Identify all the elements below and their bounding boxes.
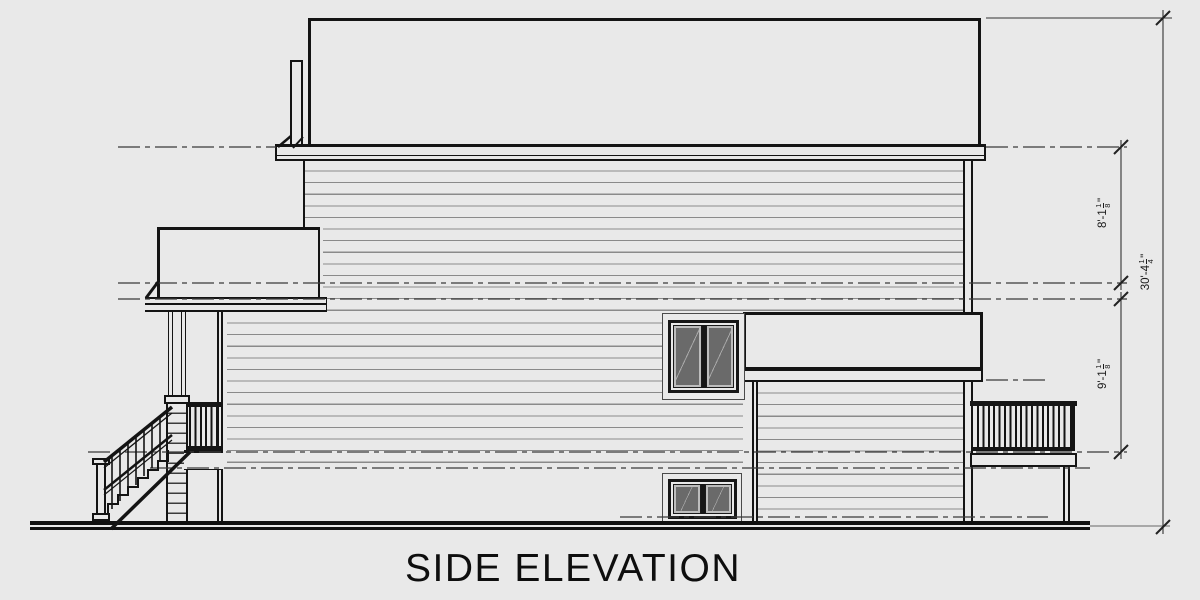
porch-fascia-line xyxy=(145,303,326,305)
porch-roof xyxy=(157,227,320,297)
lower-right-wall-siding xyxy=(757,382,963,513)
drawing-title: SIDE ELEVATION xyxy=(405,547,741,591)
chimney xyxy=(290,60,303,147)
inch-mark: " xyxy=(1097,198,1109,202)
eave-fascia xyxy=(275,144,986,161)
lower-window xyxy=(668,479,737,519)
upper-window-right-pane xyxy=(706,325,735,388)
fraction-denominator: 4 xyxy=(1147,259,1155,263)
dimension-text: 8'-1 xyxy=(1097,209,1109,228)
side-elevation-drawing: 8'-118" 9'-118" 30'-414" SIDE ELEVATION xyxy=(0,0,1200,600)
porch-column-rear xyxy=(181,312,186,397)
dimension-text: 9'-1 xyxy=(1097,370,1109,389)
porch-roof-fascia xyxy=(145,297,327,312)
stair-handrail-top-inner xyxy=(104,413,172,468)
dimension-label-overall: 30'-414" xyxy=(1116,242,1176,302)
deck-cover-fascia xyxy=(743,370,983,382)
fraction-denominator: 8 xyxy=(1104,365,1112,369)
porch-railing-balusters xyxy=(189,407,220,446)
deck-railing-end-post xyxy=(1070,401,1075,451)
main-roof xyxy=(308,18,981,147)
stair-handrail-lower xyxy=(104,435,172,490)
deck-cover-post xyxy=(752,382,758,523)
lower-window-left-pane xyxy=(673,484,701,514)
deck-railing-bottom-rail xyxy=(971,447,1074,451)
stair-handrail-top xyxy=(104,407,172,462)
porch-floor-band xyxy=(184,450,223,470)
deck-cover-roof xyxy=(743,312,983,370)
upper-window xyxy=(668,320,739,393)
stair-handrail-lower-inner xyxy=(104,440,172,495)
dimension-label-upper-floor: 8'-118" xyxy=(1073,183,1133,243)
lower-window-right-pane xyxy=(705,484,733,514)
dimension-text: 30'-4 xyxy=(1140,265,1152,290)
grade-line xyxy=(30,521,1090,530)
deck-railing-balusters xyxy=(977,406,1067,447)
deck-floor-band xyxy=(970,453,1077,467)
fraction-denominator: 8 xyxy=(1104,204,1112,208)
dimension-label-main-floor: 9'-118" xyxy=(1073,344,1133,404)
newel-post-cap xyxy=(92,458,110,465)
stair-steps xyxy=(108,450,168,513)
stair-balusters xyxy=(112,417,160,509)
porch-column-front xyxy=(168,312,173,397)
eave-fascia-line xyxy=(277,155,984,156)
inch-mark: " xyxy=(1140,254,1152,258)
upper-window-left-pane xyxy=(673,325,702,388)
newel-post xyxy=(96,465,106,514)
newel-post-base xyxy=(92,513,110,521)
deck-support-post xyxy=(1063,467,1070,523)
upper-wall-corner-strip xyxy=(303,160,323,227)
inch-mark: " xyxy=(1097,359,1109,363)
upper-wall-siding xyxy=(323,160,963,312)
